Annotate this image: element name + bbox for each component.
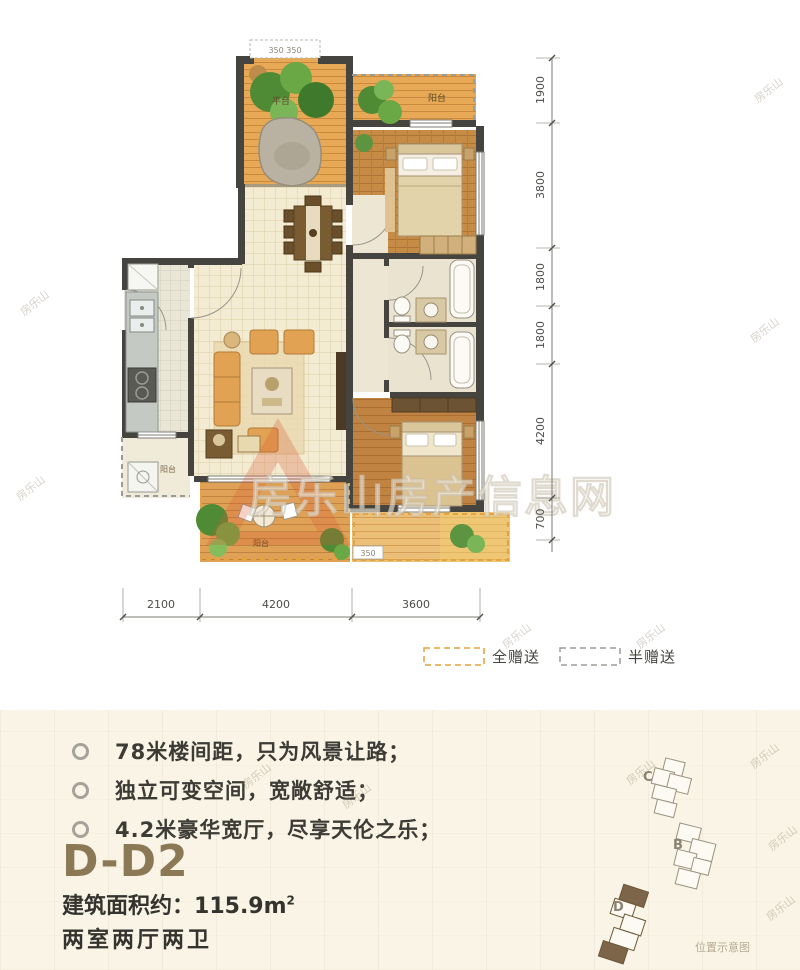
unit-area: 建筑面积约：115.9m2 [62, 888, 295, 920]
dim-1800b: 1800 [534, 321, 547, 349]
window-bedroom1 [476, 152, 484, 235]
bathtub-icon [450, 332, 474, 388]
feature-text: 78米楼间距，只为风景让路； [115, 736, 410, 766]
building-b-label: B [673, 838, 683, 853]
room-hallway [352, 195, 388, 392]
info-section: 78米楼间距，只为风景让路； 独立可变空间，宽敞舒适； 4.2米豪华宽厅，尽享天… [0, 710, 800, 970]
window-kitchen-south [138, 432, 176, 438]
building-c-label: C [643, 770, 653, 785]
bullet-icon [72, 821, 89, 838]
plant-icon [355, 134, 373, 152]
sink-icon [424, 303, 438, 317]
bed-icon [398, 144, 462, 236]
bathtub-icon [450, 260, 474, 318]
dim-3600: 3600 [402, 598, 430, 611]
dim-1900: 1900 [534, 76, 547, 104]
wardrobe-icon [392, 398, 476, 412]
dimension-bottom: 2100 4200 3600 [120, 588, 483, 622]
siteplan-caption: 位置示意图 [695, 940, 750, 954]
label-balcony-left: 阳台 [160, 464, 176, 474]
dim-700: 700 [534, 509, 547, 530]
bottom-dim-box-label: 350 [360, 549, 375, 558]
top-dim-box-label: 350 350 [268, 46, 301, 55]
building-d [597, 883, 655, 966]
label-terrace-top: 平台 [272, 95, 290, 107]
armchair-icon [250, 330, 278, 354]
feature-text: 独立可变空间，宽敞舒适； [115, 775, 379, 805]
watermark-big-text: 房乐山房产信息网 [248, 472, 616, 523]
side-table-icon [224, 332, 240, 348]
washing-machine-icon [128, 462, 158, 492]
legend-full-gift-swatch [424, 648, 484, 665]
unit-area-value: 115.9m [194, 894, 287, 919]
sink-icon [424, 335, 438, 349]
floorplan-section: 350 平台 阳台 阳台 阳台 350 350 房乐山房产信息网 [0, 0, 800, 710]
dim-4200v: 4200 [534, 417, 547, 445]
siteplan-svg: C B D 位置示意图 [583, 733, 798, 968]
dim-2100: 2100 [147, 598, 175, 611]
bullet-icon [72, 782, 89, 799]
unit-rooms: 两室两厅两卫 [62, 922, 212, 954]
legend-half-gift-swatch [560, 648, 620, 665]
building-b [665, 823, 718, 891]
kitchen-sink-icon [130, 300, 154, 332]
window-balcony-top [410, 120, 452, 127]
floorplan-svg: 350 平台 阳台 阳台 阳台 350 350 房乐山房产信息网 [0, 0, 800, 710]
toilet-icon [394, 330, 410, 353]
siteplan: C B D 位置示意图 [583, 733, 798, 968]
dim-1800a: 1800 [534, 263, 547, 291]
legend: 全赠送 半赠送 [424, 648, 676, 666]
dim-4200h: 4200 [262, 598, 290, 611]
unit-name: D-D2 [62, 836, 189, 887]
toilet-icon [394, 297, 410, 322]
kitchen-items [126, 264, 158, 432]
bullet-icon [72, 743, 89, 760]
legend-full-gift-label: 全赠送 [492, 648, 540, 666]
sofa-icon [214, 352, 240, 426]
tv-bench-icon [336, 352, 346, 430]
label-balcony-top: 阳台 [428, 92, 446, 104]
building-d-label: D [613, 900, 624, 915]
wardrobe-icon [420, 236, 476, 254]
stove-icon [128, 368, 156, 402]
page: 350 平台 阳台 阳台 阳台 350 350 房乐山房产信息网 [0, 0, 800, 970]
dim-3800: 3800 [534, 171, 547, 199]
unit-area-sup: 2 [287, 894, 295, 908]
loveseat-icon [284, 330, 314, 354]
balcony-left-items [128, 462, 158, 492]
unit-area-label: 建筑面积约： [62, 894, 194, 919]
coffee-table-icon [252, 368, 292, 414]
building-c [644, 756, 694, 820]
rug-icon [385, 168, 395, 232]
legend-half-gift-label: 半赠送 [628, 648, 676, 666]
